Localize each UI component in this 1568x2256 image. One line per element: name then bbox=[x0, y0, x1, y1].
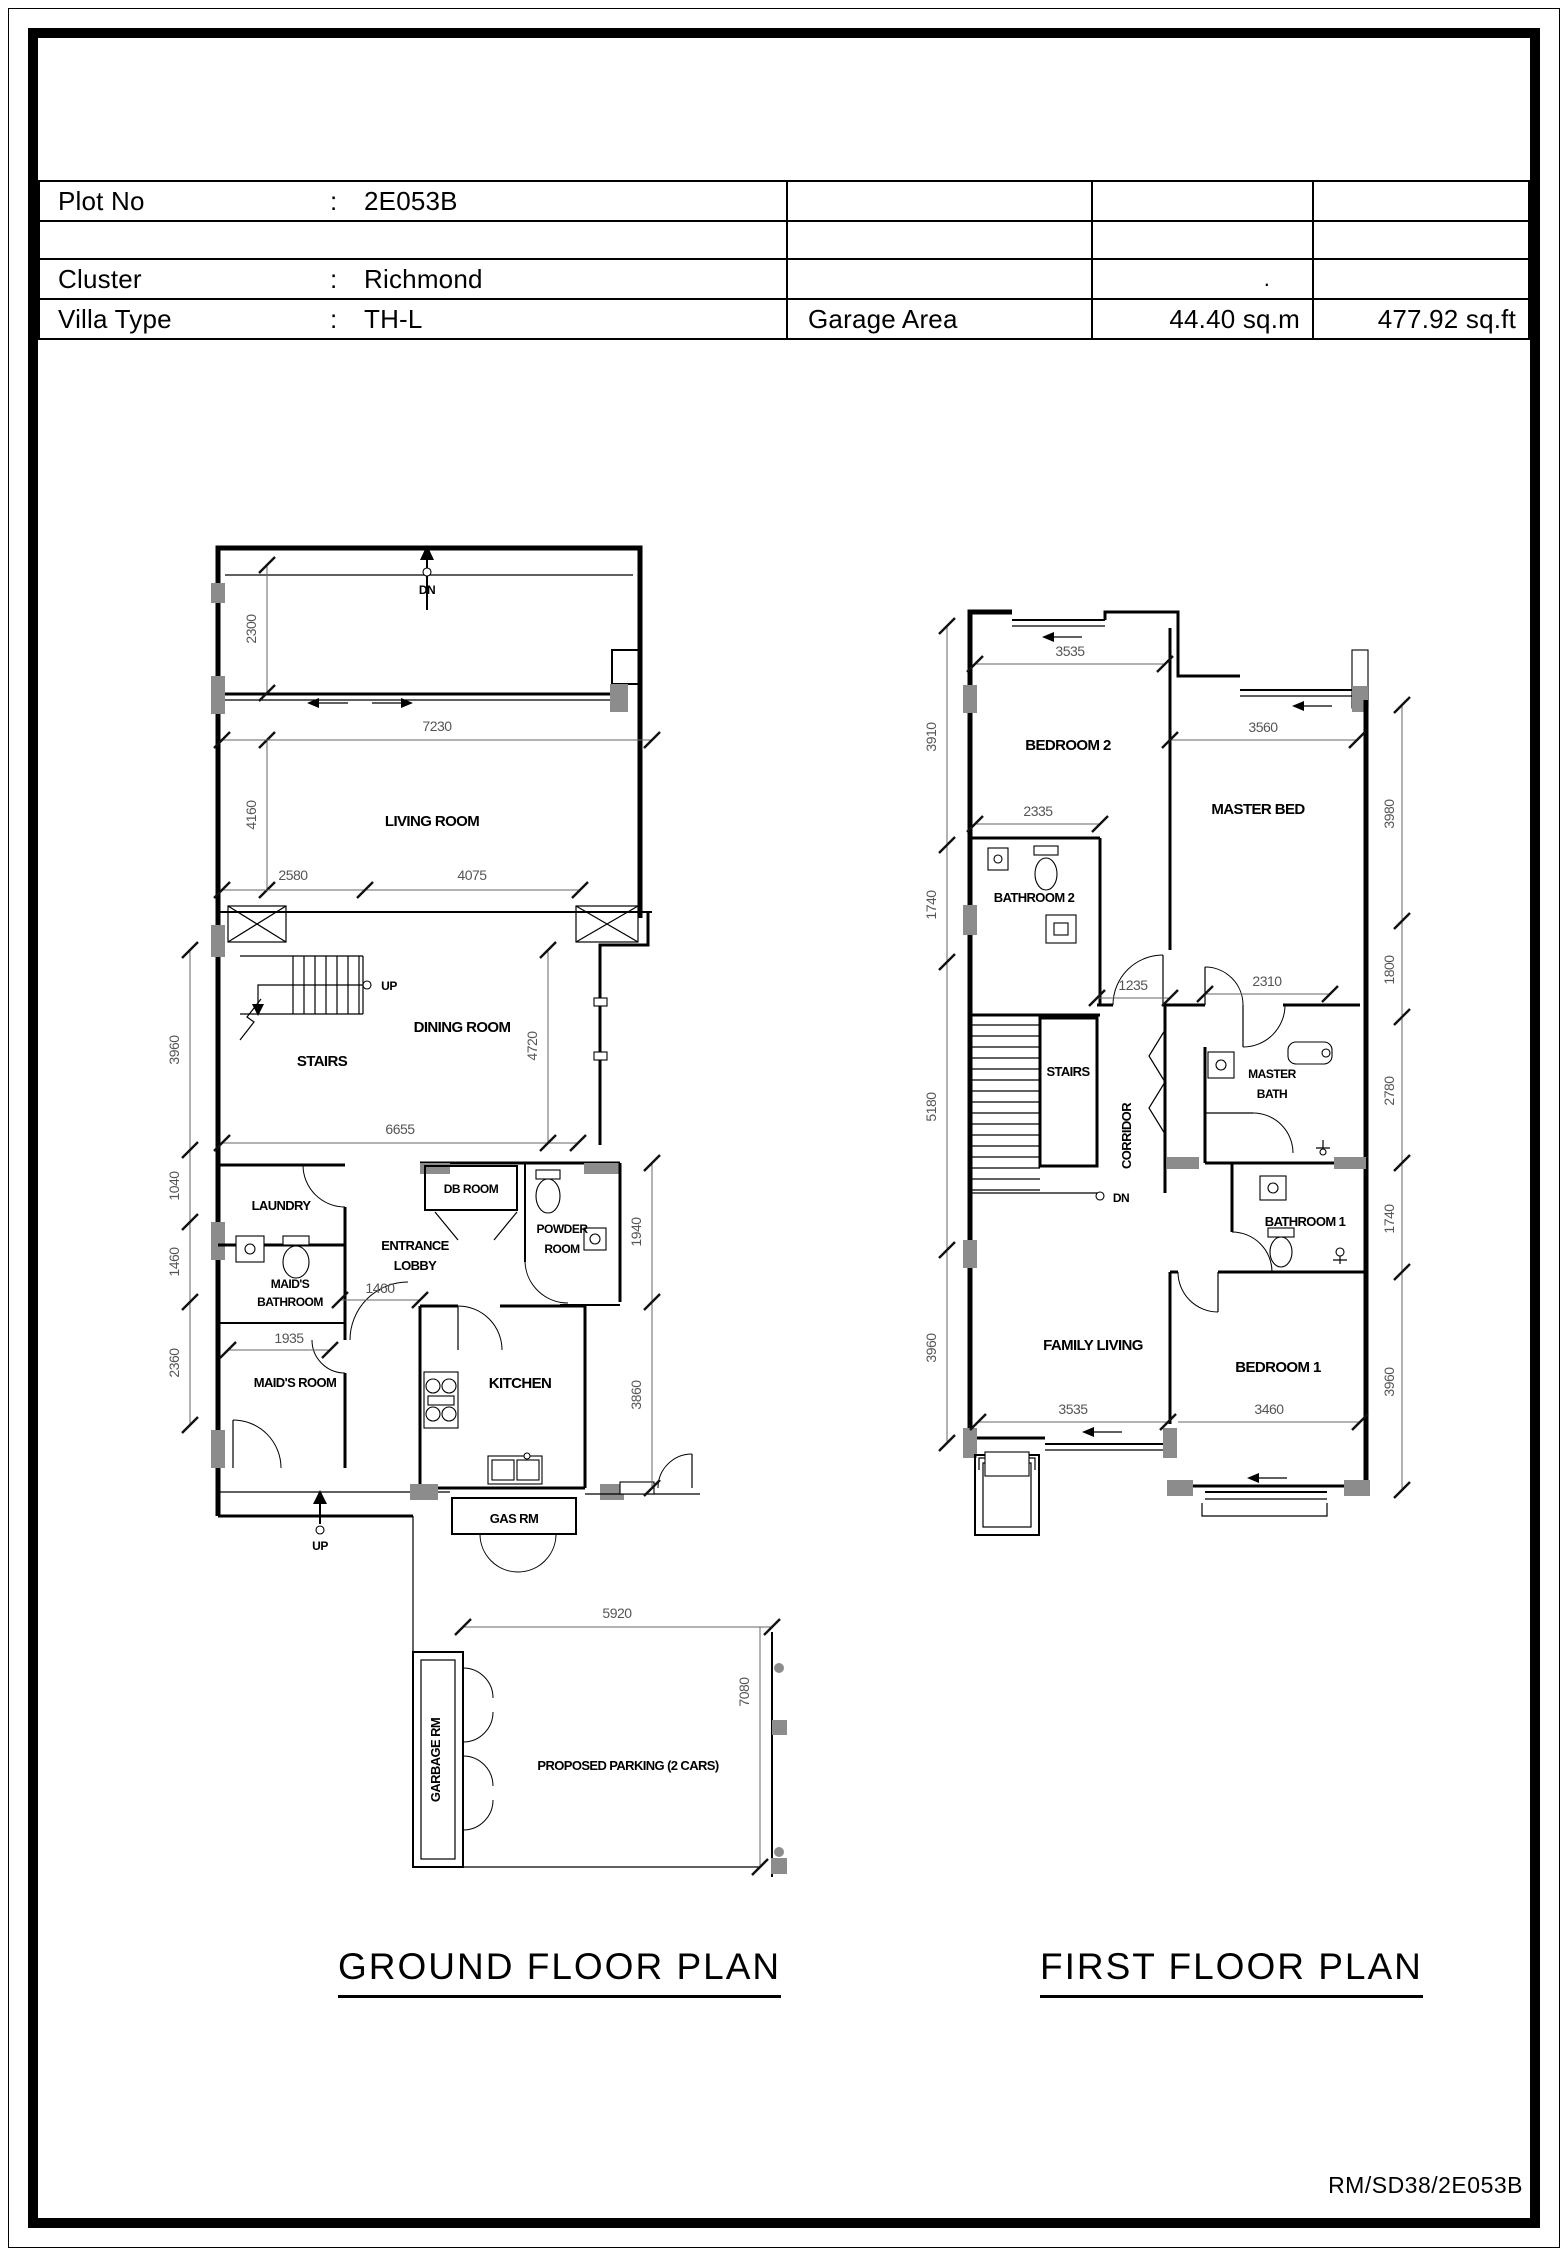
gf-dim-1040: 1040 bbox=[166, 1171, 182, 1201]
gf-room-kitchen: KITCHEN bbox=[489, 1375, 551, 1392]
plot-cell: Plot No : 2E053B bbox=[40, 182, 788, 220]
gf-doors bbox=[233, 1165, 692, 1572]
ff-dim-3535-bottom: 3535 bbox=[1058, 1401, 1088, 1417]
plot-value: 2E053B bbox=[364, 186, 458, 217]
cluster-label: Cluster bbox=[40, 264, 330, 295]
gf-room-stairs: STAIRS bbox=[297, 1053, 348, 1070]
gf-dim-2360: 2360 bbox=[166, 1348, 182, 1378]
ff-dim-1740-right: 1740 bbox=[1381, 1204, 1397, 1234]
first-floor-plan-drawing: 3535 3560 2335 1235 2310 3535 3460 3910 … bbox=[890, 560, 1450, 1560]
ff-room-master-bath-1: MASTER bbox=[1248, 1067, 1297, 1081]
gf-room-laundry: LAUNDRY bbox=[252, 1198, 312, 1213]
cluster-cell: Cluster : Richmond bbox=[40, 260, 788, 298]
header-row-empty bbox=[40, 222, 1528, 260]
garage-area-sqft: 477.92 sq.ft bbox=[1314, 300, 1528, 338]
ff-dim-1235: 1235 bbox=[1118, 977, 1148, 993]
gf-dim-1940: 1940 bbox=[628, 1217, 644, 1247]
first-floor-title: FIRST FLOOR PLAN bbox=[1040, 1946, 1423, 1998]
villa-label: Villa Type bbox=[40, 304, 330, 335]
empty-cell bbox=[788, 182, 1093, 220]
ff-stairs bbox=[970, 1018, 1165, 1200]
plot-colon: : bbox=[330, 186, 364, 217]
gf-dim-7080: 7080 bbox=[736, 1677, 752, 1707]
header-row-plot: Plot No : 2E053B bbox=[40, 182, 1528, 222]
villa-value: TH-L bbox=[364, 304, 423, 335]
gf-room-powder-1: POWDER bbox=[537, 1222, 589, 1236]
gf-room-living: LIVING ROOM bbox=[385, 813, 479, 830]
garage-area-sqm: 44.40 sq.m bbox=[1093, 300, 1314, 338]
villa-colon: : bbox=[330, 304, 364, 335]
cluster-colon: : bbox=[330, 264, 364, 295]
drawing-reference: RM/SD38/2E053B bbox=[1328, 2172, 1523, 2199]
ff-fixtures bbox=[988, 846, 1347, 1267]
empty-cell bbox=[1314, 182, 1528, 220]
ff-room-bedroom1: BEDROOM 1 bbox=[1235, 1359, 1321, 1376]
gf-room-db: DB ROOM bbox=[444, 1182, 499, 1196]
gf-room-garbage: GARBAGE RM bbox=[428, 1718, 443, 1802]
ff-dim-2780: 2780 bbox=[1381, 1076, 1397, 1106]
gf-dim-3860: 3860 bbox=[628, 1380, 644, 1410]
gf-dim-1460-v: 1460 bbox=[166, 1247, 182, 1277]
empty-cell bbox=[40, 222, 788, 258]
gf-label-up-stairs: UP bbox=[381, 979, 397, 993]
ff-room-master-bath-2: BATH bbox=[1257, 1087, 1287, 1101]
ff-dim-3960-left: 3960 bbox=[923, 1333, 939, 1363]
gf-dim-4720: 4720 bbox=[524, 1031, 540, 1061]
gf-stairs bbox=[240, 956, 371, 1040]
header-row-cluster: Cluster : Richmond . bbox=[40, 260, 1528, 300]
gf-room-maid-bath-1: MAID'S bbox=[271, 1277, 310, 1291]
gf-dimensions: 2300 4160 7230 2580 4075 3960 1040 1460 … bbox=[166, 557, 780, 1875]
gf-dim-4075: 4075 bbox=[457, 867, 487, 883]
ff-dim-5180: 5180 bbox=[923, 1092, 939, 1122]
ff-dim-3960-right: 3960 bbox=[1381, 1367, 1397, 1397]
gf-room-labels: DN LIVING ROOM DINING ROOM STAIRS UP LAU… bbox=[252, 583, 719, 1802]
header-row-villa: Villa Type : TH-L Garage Area 44.40 sq.m… bbox=[40, 300, 1528, 338]
ff-dim-1800: 1800 bbox=[1381, 955, 1397, 985]
gf-dim-1460-w: 1460 bbox=[365, 1280, 395, 1296]
gf-dim-6655: 6655 bbox=[385, 1121, 415, 1137]
ff-room-master-bed: MASTER BED bbox=[1211, 801, 1305, 818]
villa-cell: Villa Type : TH-L bbox=[40, 300, 788, 338]
gf-dim-2300: 2300 bbox=[243, 614, 259, 644]
ff-dim-3460: 3460 bbox=[1254, 1401, 1284, 1417]
ff-room-stairs: STAIRS bbox=[1046, 1064, 1090, 1079]
gf-label-dn: DN bbox=[419, 583, 435, 597]
ground-floor-title: GROUND FLOOR PLAN bbox=[338, 1946, 781, 1998]
ff-label-dn: DN bbox=[1113, 1191, 1129, 1205]
ff-room-bedroom2: BEDROOM 2 bbox=[1025, 737, 1111, 754]
ground-floor-plan-drawing: 2300 4160 7230 2580 4075 3960 1040 1460 … bbox=[120, 520, 820, 1920]
ff-room-corridor: CORRIDOR bbox=[1119, 1102, 1134, 1169]
gf-dim-5920: 5920 bbox=[602, 1605, 632, 1621]
gf-dim-4160: 4160 bbox=[243, 800, 259, 830]
ff-walls bbox=[963, 612, 1370, 1535]
empty-cell bbox=[1314, 260, 1528, 298]
gf-label-up-entry: UP bbox=[312, 1539, 328, 1553]
gf-room-maid: MAID'S ROOM bbox=[254, 1375, 336, 1390]
ff-dim-1740-left: 1740 bbox=[923, 890, 939, 920]
ff-room-bathroom1: BATHROOM 1 bbox=[1265, 1214, 1346, 1229]
floor-plan-sheet: Plot No : 2E053B Cluster : Richmond . bbox=[0, 0, 1568, 2256]
ff-dim-2310: 2310 bbox=[1252, 973, 1282, 989]
empty-cell bbox=[788, 260, 1093, 298]
header-table: Plot No : 2E053B Cluster : Richmond . bbox=[38, 180, 1530, 340]
empty-cell bbox=[1093, 222, 1314, 258]
ff-room-bathroom2: BATHROOM 2 bbox=[994, 890, 1075, 905]
empty-cell bbox=[788, 222, 1093, 258]
gf-dim-7230: 7230 bbox=[422, 718, 452, 734]
gf-dim-2580: 2580 bbox=[278, 867, 308, 883]
gf-room-lobby-2: LOBBY bbox=[394, 1258, 437, 1273]
empty-cell bbox=[1093, 182, 1314, 220]
gf-dim-1935: 1935 bbox=[274, 1330, 304, 1346]
empty-cell bbox=[1314, 222, 1528, 258]
ff-dim-3980: 3980 bbox=[1381, 799, 1397, 829]
cluster-value: Richmond bbox=[364, 264, 483, 295]
gf-room-lobby-1: ENTRANCE bbox=[381, 1238, 449, 1253]
gf-room-gas: GAS RM bbox=[490, 1511, 538, 1526]
plot-label: Plot No bbox=[40, 186, 330, 217]
ff-dim-3910: 3910 bbox=[923, 722, 939, 752]
gf-room-powder-2: ROOM bbox=[544, 1242, 580, 1256]
ff-dim-3560: 3560 bbox=[1248, 719, 1278, 735]
gf-room-dining: DINING ROOM bbox=[414, 1019, 511, 1036]
gf-room-parking: PROPOSED PARKING (2 CARS) bbox=[537, 1758, 718, 1773]
gf-dim-3960: 3960 bbox=[166, 1035, 182, 1065]
garage-area-label: Garage Area bbox=[788, 300, 1093, 338]
ff-room-family: FAMILY LIVING bbox=[1043, 1337, 1143, 1354]
ff-doors bbox=[1113, 955, 1293, 1312]
ff-dim-2335: 2335 bbox=[1023, 803, 1053, 819]
stray-dot-cell: . bbox=[1093, 260, 1314, 298]
ff-dim-3535-top: 3535 bbox=[1055, 643, 1085, 659]
gf-room-maid-bath-2: BATHROOM bbox=[257, 1295, 323, 1309]
